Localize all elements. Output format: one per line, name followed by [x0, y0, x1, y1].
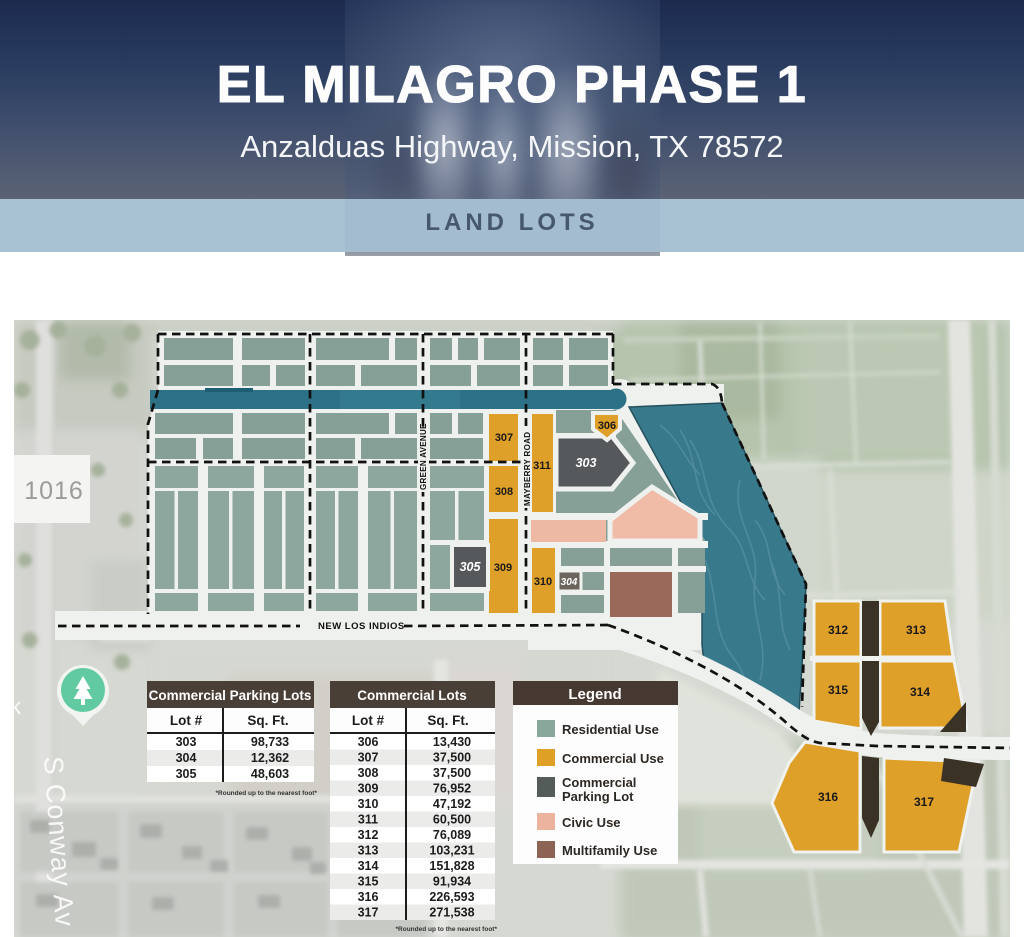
svg-text:308: 308 — [495, 486, 513, 498]
svg-text:226,593: 226,593 — [429, 890, 474, 904]
svg-text:314: 314 — [910, 685, 930, 699]
svg-text:317: 317 — [914, 795, 934, 809]
svg-text:48,603: 48,603 — [251, 767, 289, 781]
svg-text:311: 311 — [358, 813, 378, 827]
svg-text:310: 310 — [358, 797, 379, 811]
svg-text:309: 309 — [358, 782, 379, 796]
svg-text:313: 313 — [358, 844, 379, 858]
svg-text:Lot #: Lot # — [352, 713, 385, 728]
svg-text:Commercial Parking Lots: Commercial Parking Lots — [149, 688, 312, 703]
svg-text:103,231: 103,231 — [429, 844, 474, 858]
svg-text:Multifamily Use: Multifamily Use — [562, 843, 657, 858]
svg-text:60,500: 60,500 — [433, 813, 471, 827]
svg-text:303: 303 — [576, 456, 597, 470]
svg-text:313: 313 — [906, 623, 926, 637]
svg-text:MAYBERRY ROAD: MAYBERRY ROAD — [523, 432, 532, 506]
svg-text:Commercial: Commercial — [562, 775, 636, 790]
svg-text:315: 315 — [358, 875, 379, 889]
svg-text:Parking Lot: Parking Lot — [562, 789, 634, 804]
svg-text:304: 304 — [561, 577, 578, 588]
svg-text:312: 312 — [358, 828, 379, 842]
svg-text:1016: 1016 — [24, 477, 84, 505]
svg-text:GREEN AVENUE: GREEN AVENUE — [419, 423, 428, 490]
svg-text:k: k — [14, 694, 22, 719]
svg-text:311: 311 — [533, 460, 551, 472]
svg-text:316: 316 — [358, 890, 379, 904]
svg-text:98,733: 98,733 — [251, 735, 289, 749]
svg-text:310: 310 — [534, 576, 552, 588]
svg-text:312: 312 — [828, 623, 848, 637]
svg-text:271,538: 271,538 — [429, 906, 474, 920]
svg-text:47,192: 47,192 — [433, 797, 471, 811]
svg-text:309: 309 — [494, 562, 512, 574]
svg-text:76,089: 76,089 — [433, 828, 471, 842]
svg-text:308: 308 — [358, 766, 379, 780]
svg-text:304: 304 — [176, 751, 197, 765]
svg-text:NEW LOS INDIOS: NEW LOS INDIOS — [318, 621, 405, 632]
svg-text:305: 305 — [176, 767, 197, 781]
svg-text:Lot #: Lot # — [170, 713, 203, 728]
svg-text:37,500: 37,500 — [433, 766, 471, 780]
svg-text:*Rounded up to the nearest foo: *Rounded up to the nearest foot* — [216, 790, 318, 797]
svg-text:316: 316 — [818, 790, 838, 804]
svg-text:91,934: 91,934 — [433, 875, 471, 889]
svg-text:Commercial Lots: Commercial Lots — [357, 688, 467, 703]
svg-text:Sq. Ft.: Sq. Ft. — [427, 713, 468, 728]
svg-text:306: 306 — [598, 420, 616, 432]
svg-text:37,500: 37,500 — [433, 751, 471, 765]
svg-text:306: 306 — [358, 735, 379, 749]
svg-text:151,828: 151,828 — [429, 859, 474, 873]
svg-text:317: 317 — [358, 906, 379, 920]
svg-text:Civic Use: Civic Use — [562, 815, 621, 830]
svg-text:76,952: 76,952 — [433, 782, 471, 796]
svg-text:314: 314 — [358, 859, 379, 873]
svg-text:Sq. Ft.: Sq. Ft. — [247, 713, 288, 728]
svg-text:12,362: 12,362 — [251, 751, 289, 765]
svg-text:Commercial Use: Commercial Use — [562, 751, 664, 766]
svg-text:307: 307 — [495, 432, 513, 444]
svg-text:315: 315 — [828, 683, 848, 697]
svg-text:Residential Use: Residential Use — [562, 722, 659, 737]
svg-text:305: 305 — [460, 560, 482, 574]
svg-text:307: 307 — [358, 751, 379, 765]
svg-text:Legend: Legend — [568, 686, 621, 703]
svg-text:*Rounded up to the nearest foo: *Rounded up to the nearest foot* — [396, 926, 498, 933]
svg-text:303: 303 — [176, 735, 197, 749]
svg-text:13,430: 13,430 — [433, 735, 471, 749]
